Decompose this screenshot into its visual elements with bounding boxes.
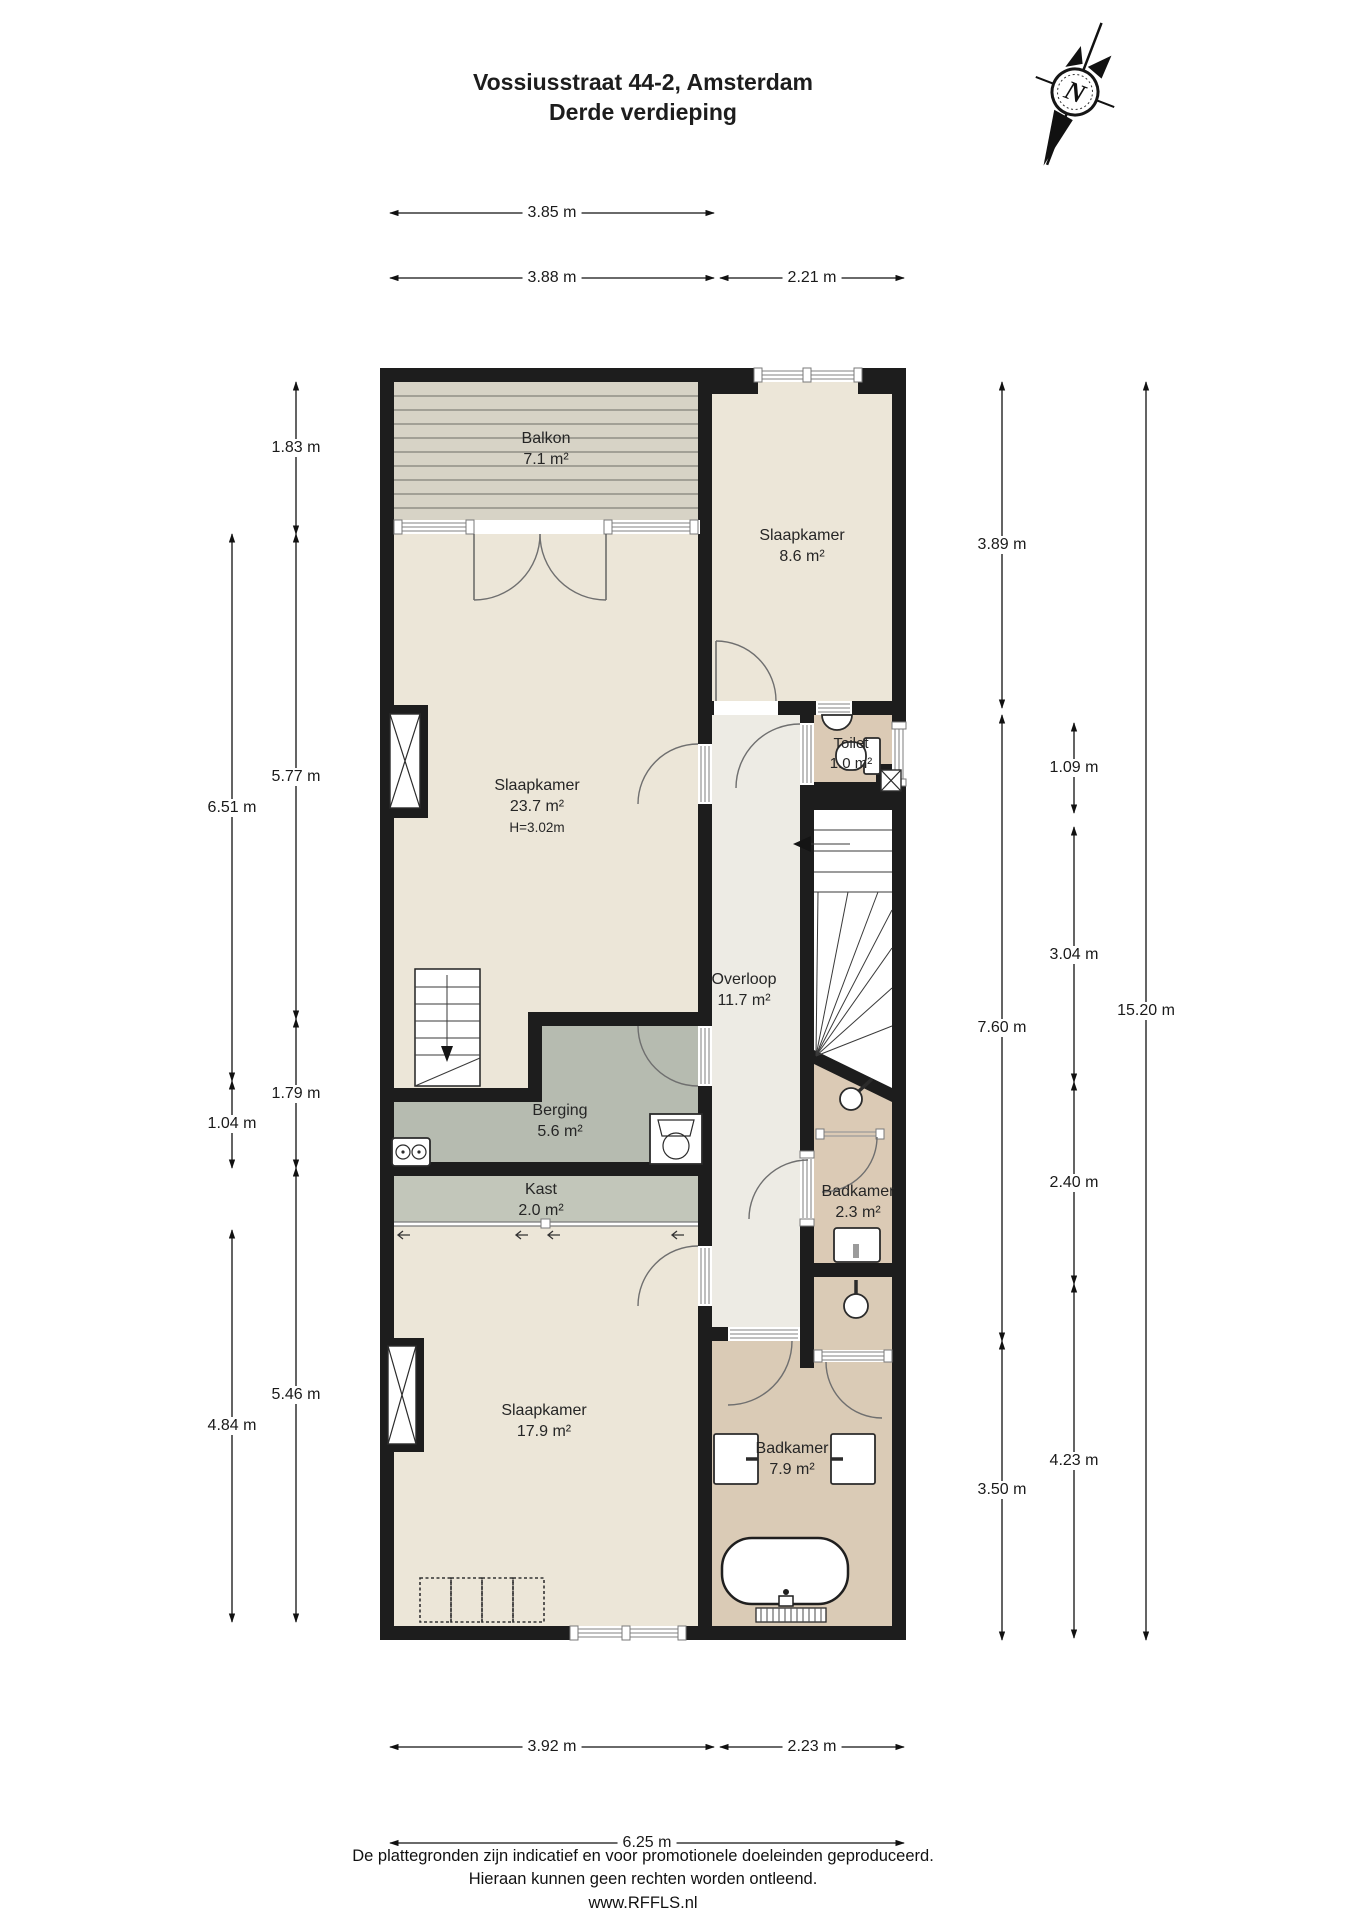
dim-label-left-104: 1.04 m bbox=[203, 1115, 262, 1133]
dim-label-left-577: 5.77 m bbox=[267, 768, 326, 786]
compass-rose: N bbox=[1007, 8, 1141, 182]
footer-website: www.RFFLS.nl bbox=[352, 1892, 934, 1915]
dim-label-top-385: 3.85 m bbox=[523, 204, 582, 222]
dim-label-right-389: 3.89 m bbox=[973, 536, 1032, 554]
dim-label-bottom-223: 2.23 m bbox=[783, 1738, 842, 1756]
dim-label-top-221: 2.21 m bbox=[783, 269, 842, 287]
dim-label-right-304: 3.04 m bbox=[1045, 946, 1104, 964]
dim-label-left-651: 6.51 m bbox=[203, 799, 262, 817]
dim-label-right-1520: 15.20 m bbox=[1112, 1002, 1180, 1020]
floor-plan-graphic: N bbox=[0, 0, 1358, 1920]
dim-label-bottom-392: 3.92 m bbox=[523, 1738, 582, 1756]
vestibule-sink-icon bbox=[844, 1294, 868, 1318]
room-label-berging: Berging 5.6 m² bbox=[532, 1100, 587, 1142]
dim-label-right-240: 2.40 m bbox=[1045, 1174, 1104, 1192]
title-address: Vossiusstraat 44-2, Amsterdam bbox=[473, 68, 813, 98]
overloop-floor bbox=[712, 715, 800, 1327]
title-floor: Derde verdieping bbox=[473, 98, 813, 128]
dim-label-right-109: 1.09 m bbox=[1045, 759, 1104, 777]
room-label-balkon: Balkon 7.1 m² bbox=[522, 428, 571, 470]
room-label-slaapkamer-onder: Slaapkamer 17.9 m² bbox=[501, 1400, 586, 1442]
dim-label-right-423: 4.23 m bbox=[1045, 1452, 1104, 1470]
page-title: Vossiusstraat 44-2, Amsterdam Derde verd… bbox=[473, 68, 813, 128]
room-label-badkamer-groot: Badkamer 7.9 m² bbox=[756, 1438, 829, 1480]
bathtub-faucet bbox=[779, 1596, 793, 1606]
boiler-icon bbox=[392, 1138, 430, 1166]
room-label-overloop: Overloop 11.7 m² bbox=[712, 969, 777, 1011]
footer-line-1: De plattegronden zijn indicatief en voor… bbox=[352, 1845, 934, 1868]
room-label-toilet: Toilet 1.0 m² bbox=[830, 734, 873, 774]
room-label-badkamer-klein: Badkamer 2.3 m² bbox=[822, 1181, 895, 1223]
room-label-kast: Kast 2.0 m² bbox=[518, 1179, 563, 1221]
badkamer-klein-sink-icon bbox=[840, 1088, 862, 1110]
dim-label-left-546: 5.46 m bbox=[267, 1386, 326, 1404]
room-label-slaapkamer-groot: Slaapkamer 23.7 m² H=3.02m bbox=[494, 775, 579, 837]
dim-label-left-484: 4.84 m bbox=[203, 1417, 262, 1435]
badkamer-klein-toilet-flush bbox=[853, 1244, 859, 1258]
room-label-slaapkamer-boven: Slaapkamer 8.6 m² bbox=[759, 525, 844, 567]
compass-south-spike bbox=[1034, 110, 1074, 170]
footer-line-2: Hieraan kunnen geen rechten worden ontle… bbox=[352, 1868, 934, 1891]
dim-label-left-179: 1.79 m bbox=[267, 1085, 326, 1103]
dim-label-top-388: 3.88 m bbox=[523, 269, 582, 287]
dim-label-right-350: 3.50 m bbox=[973, 1481, 1032, 1499]
internal-staircase bbox=[415, 969, 480, 1086]
floorplan-page: N Vossiusstraat 44-2, Amsterdam Derde ve… bbox=[0, 0, 1358, 1920]
footer-disclaimer: De plattegronden zijn indicatief en voor… bbox=[352, 1845, 934, 1915]
dim-label-left-183: 1.83 m bbox=[267, 439, 326, 457]
dim-label-right-760: 7.60 m bbox=[973, 1019, 1032, 1037]
door-slaapkamer-boven bbox=[714, 701, 778, 715]
